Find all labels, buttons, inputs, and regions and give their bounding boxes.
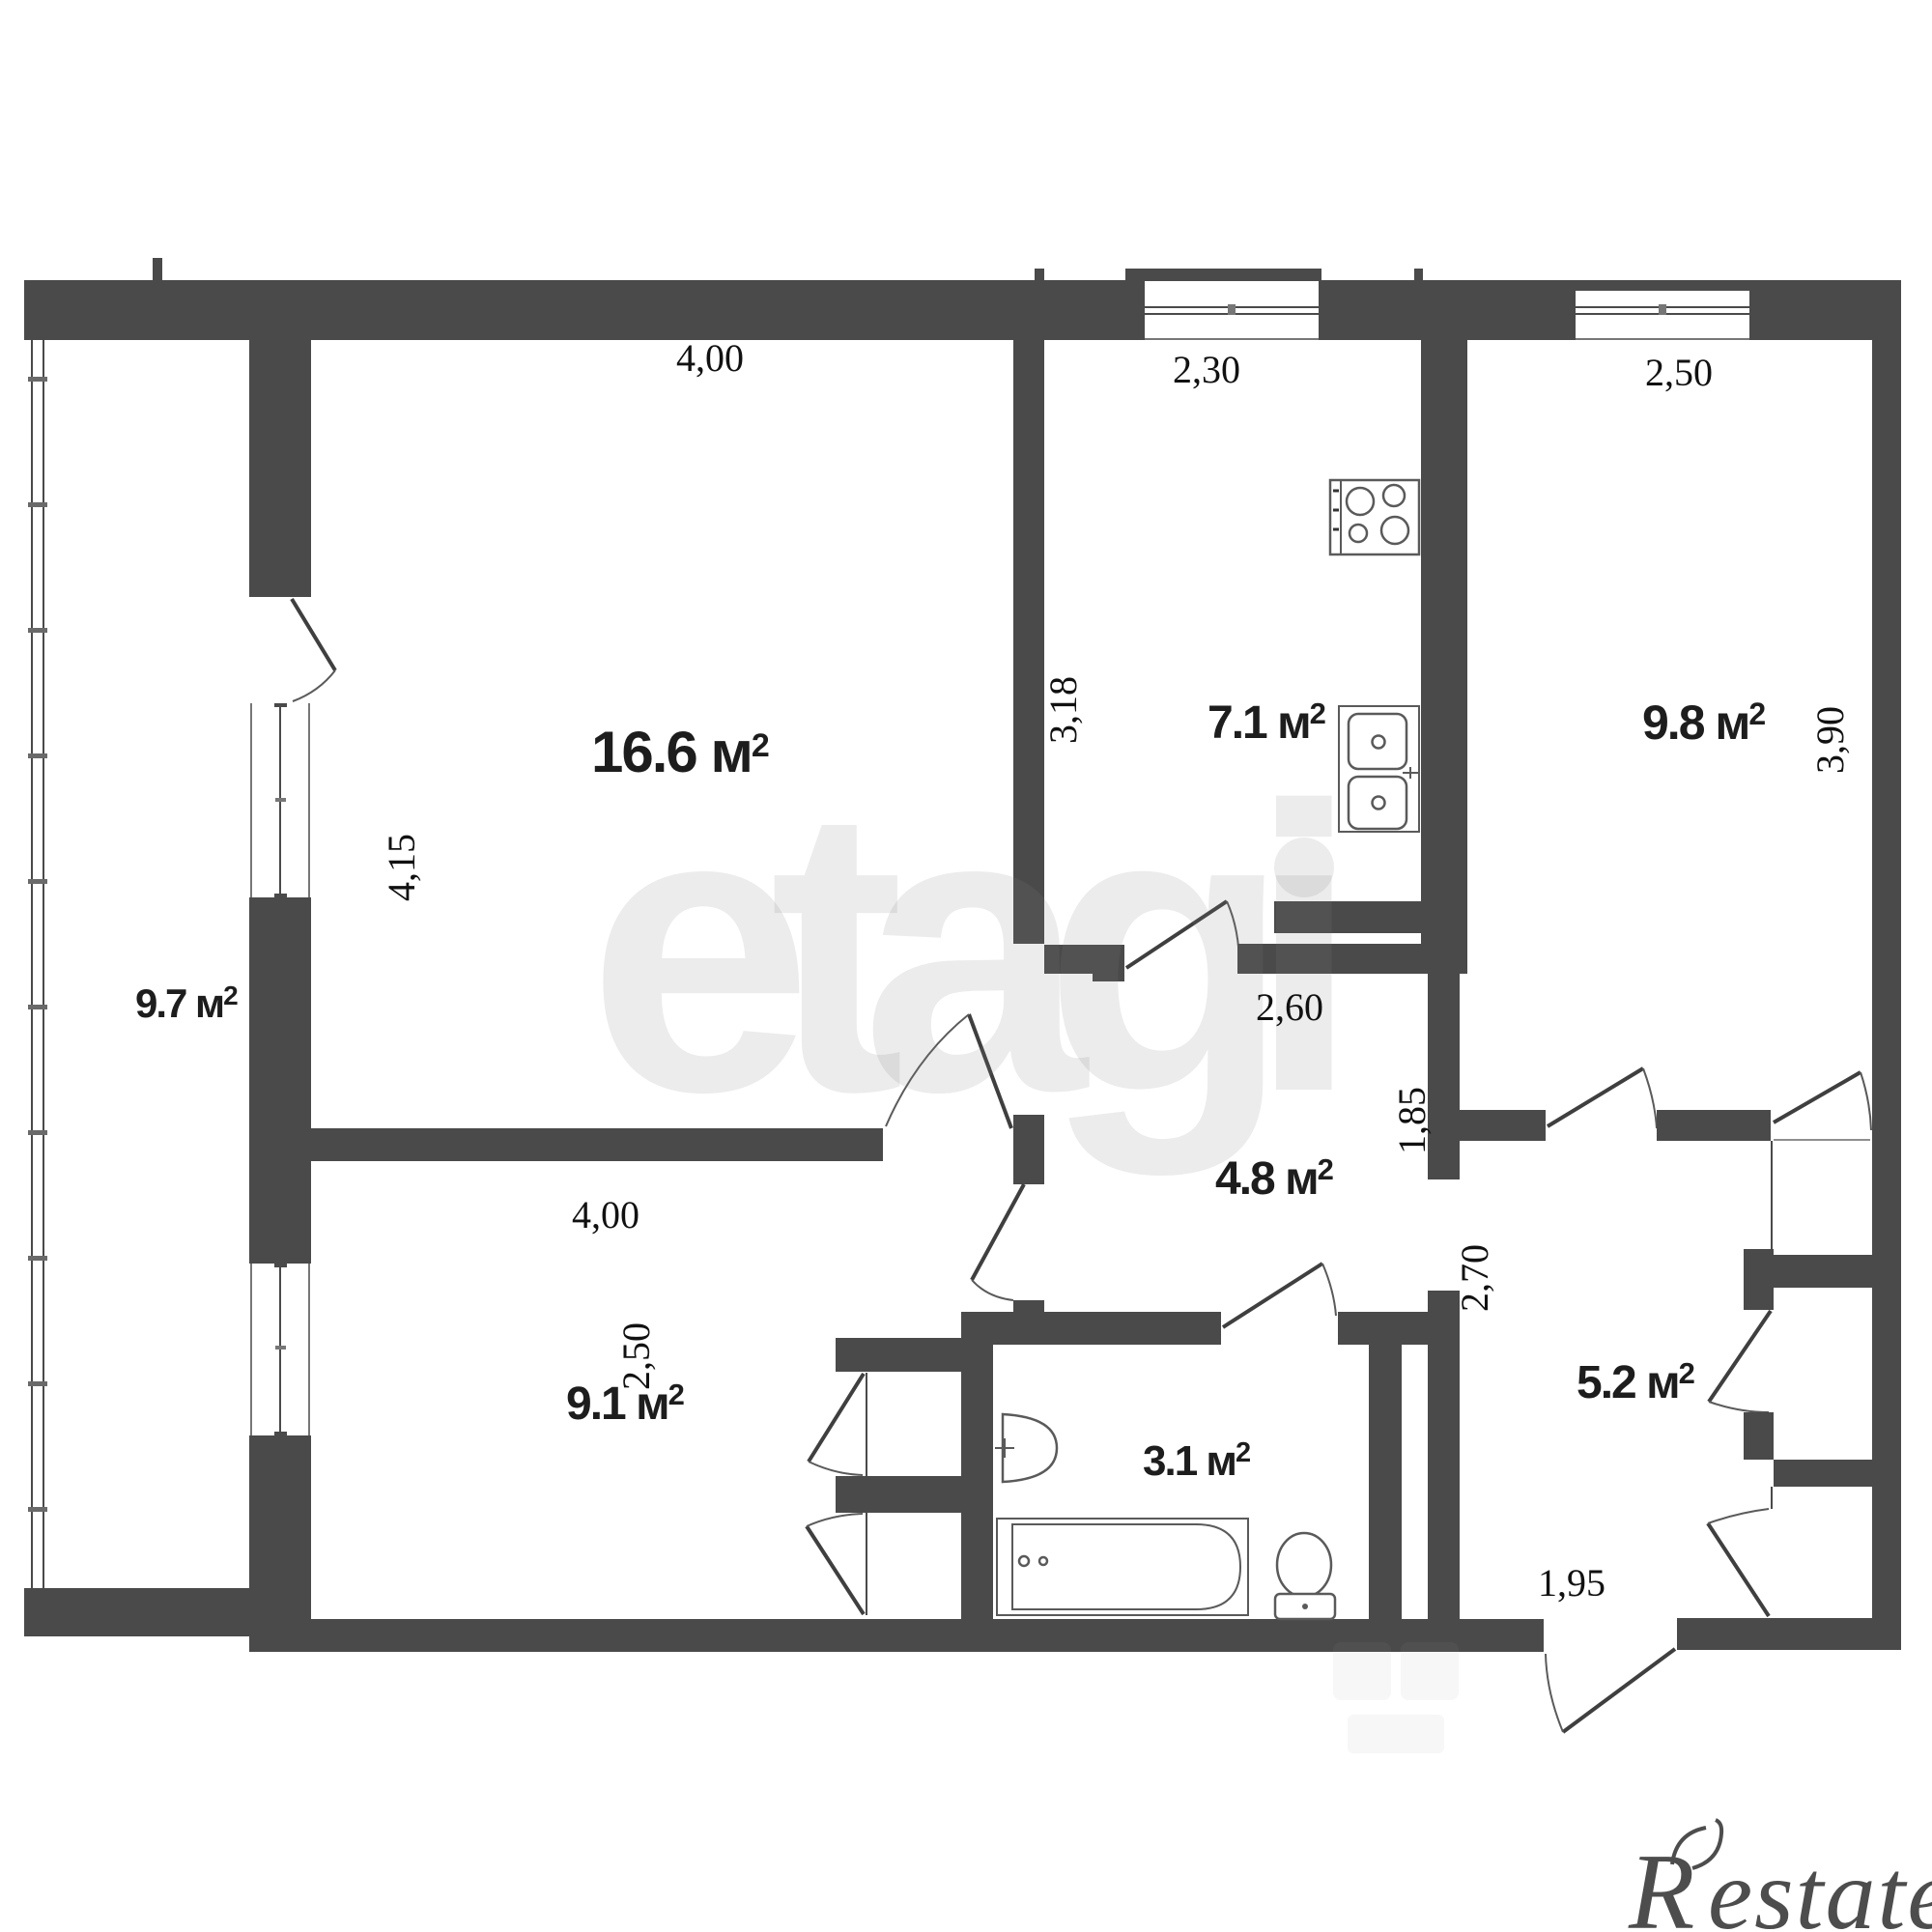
svg-text:4,00: 4,00 <box>572 1193 639 1236</box>
svg-text:2,50: 2,50 <box>614 1322 658 1390</box>
svg-text:3.1 м2: 3.1 м2 <box>1143 1437 1250 1485</box>
svg-text:1,85: 1,85 <box>1390 1087 1434 1154</box>
svg-text:9.8 м2: 9.8 м2 <box>1642 696 1765 750</box>
svg-text:5.2 м2: 5.2 м2 <box>1577 1356 1694 1408</box>
svg-text:etagi: etagi <box>587 724 1336 1179</box>
svg-text:4.8 м2: 4.8 м2 <box>1215 1152 1333 1205</box>
svg-text:4,15: 4,15 <box>380 834 423 901</box>
svg-text:2,50: 2,50 <box>1645 351 1713 394</box>
svg-text:estate: estate <box>1708 1839 1932 1932</box>
svg-text:16.6 м2: 16.6 м2 <box>591 720 769 784</box>
svg-text:2,70: 2,70 <box>1453 1244 1496 1312</box>
svg-text:2,60: 2,60 <box>1256 985 1323 1029</box>
svg-text:9.7 м2: 9.7 м2 <box>135 980 238 1026</box>
svg-text:1,95: 1,95 <box>1538 1561 1605 1605</box>
svg-text:2,30: 2,30 <box>1173 348 1240 391</box>
svg-text:R: R <box>1628 1833 1694 1932</box>
svg-text:7.1 м2: 7.1 м2 <box>1207 696 1325 749</box>
svg-text:3,90: 3,90 <box>1808 706 1852 774</box>
svg-text:3,18: 3,18 <box>1041 676 1085 744</box>
svg-text:4,00: 4,00 <box>676 336 744 380</box>
